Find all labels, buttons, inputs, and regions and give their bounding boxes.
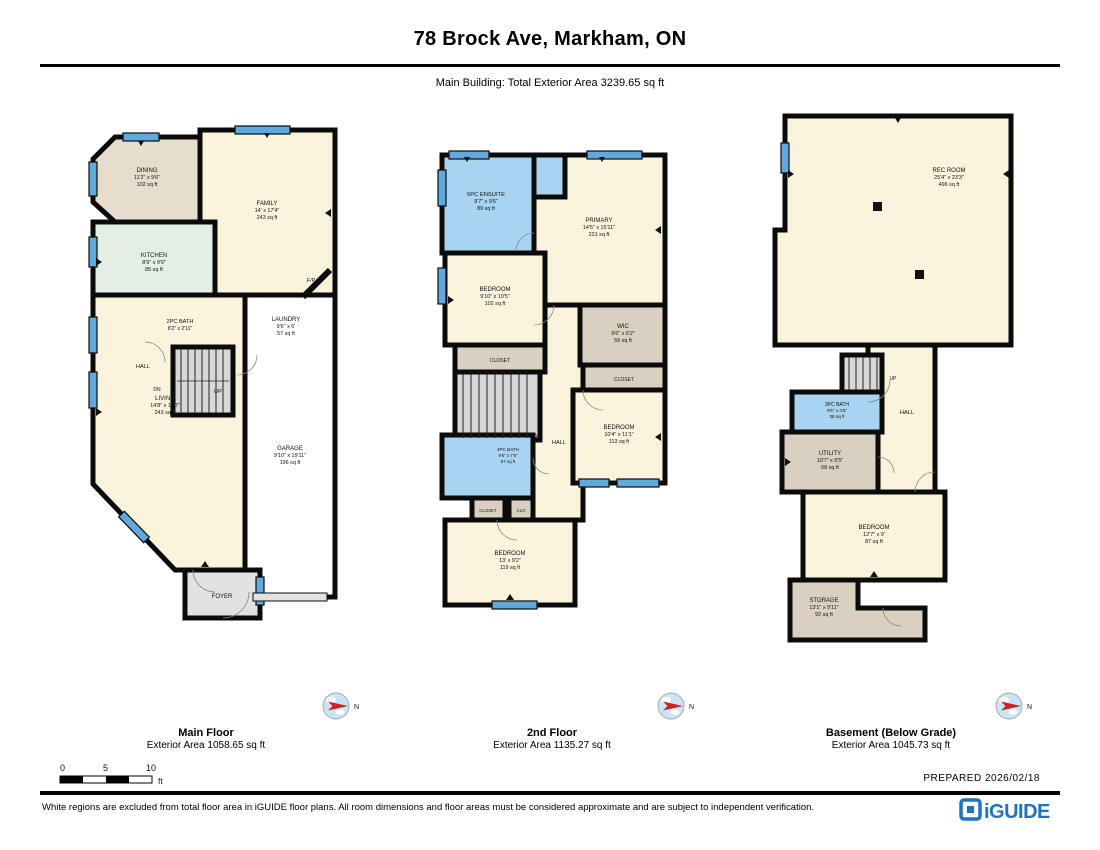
room-dims: 10'4" x 11'1": [604, 432, 633, 438]
room-label-family: FAMILY 14' x 17'4" 243 sq ft: [255, 201, 280, 221]
room-dims: 9'6" x 6'2": [611, 331, 635, 337]
room-dims: 9'10" x 10'5": [480, 294, 510, 300]
main-floor-caption: Main Floor Exterior Area 1058.65 sq ft: [96, 727, 316, 751]
room-area: 68 sq ft: [821, 465, 839, 471]
compass-icon: N: [656, 691, 700, 721]
room-name: PRIMARY: [585, 218, 612, 224]
room-dims: 14' x 17'4": [255, 208, 280, 214]
scale-bar-segment: [106, 776, 129, 783]
scale-bar: 0 5 10 ft: [56, 762, 186, 790]
room-area: 87 sq ft: [865, 539, 883, 545]
room-dims: 14'5" x 15'11": [583, 225, 615, 231]
window: [617, 479, 659, 487]
room-dims: 11'2" x 9'6": [134, 175, 160, 181]
room-dims: 8'9" x 9'9": [142, 260, 166, 266]
fireplace-label: F/P: [307, 278, 316, 284]
iguide-logo: iGUIDE: [958, 796, 1058, 824]
room-label-dining: DINING 11'2" x 9'6" 102 sq ft: [134, 168, 160, 188]
room-name: KITCHEN: [141, 253, 167, 259]
window: [89, 162, 97, 196]
compass-north-label: N: [1027, 704, 1032, 711]
room-label-closet-left: CLOSET: [490, 358, 510, 364]
floor-area: Exterior Area 1058.65 sq ft: [96, 740, 316, 751]
floor-area: Exterior Area 1135.27 sq ft: [442, 740, 662, 751]
room-name: BEDROOM: [858, 525, 889, 531]
window: [89, 317, 97, 353]
window: [587, 151, 642, 159]
floor-area: Exterior Area 1045.73 sq ft: [781, 740, 1001, 751]
room-label-foyer: FOYER: [212, 594, 233, 600]
iguide-logo-text: iGUIDE: [984, 801, 1050, 823]
room-area: 243 sq ft: [257, 215, 278, 221]
floor-name: 2nd Floor: [442, 727, 662, 739]
scale-bar-segment: [60, 776, 83, 783]
basement-plan: REC ROOM 25'4" x 23'3" 496 sq ft 3PC BAT…: [763, 112, 1015, 652]
prepared-date: PREPARED 2026/02/18: [860, 773, 1040, 784]
support-post: [915, 270, 924, 279]
room-name: BEDROOM: [603, 425, 634, 431]
building-area-subtitle: Main Building: Total Exterior Area 3239.…: [0, 77, 1100, 89]
dn-label: DN: [153, 387, 161, 393]
room-name: 5PC ENSUITE: [467, 192, 505, 198]
window: [89, 372, 97, 408]
window: [438, 268, 446, 304]
room-dims: 9'5" x 4'5": [827, 408, 847, 413]
hall-label: HALL: [136, 364, 150, 370]
window: [438, 170, 446, 206]
floor-name: Main Floor: [96, 727, 316, 739]
up-label: UP: [214, 389, 222, 395]
room-area: 196 sq ft: [280, 460, 301, 466]
floor-plan-page: 78 Brock Ave, Markham, ON Main Building:…: [0, 0, 1100, 850]
room-dims: 14'8" x 17'7": [150, 403, 180, 409]
room-area: 119 sq ft: [500, 565, 521, 571]
room-area: 496 sq ft: [939, 182, 960, 188]
compass-north-label: N: [354, 704, 359, 711]
room-area: 221 sq ft: [589, 232, 610, 238]
room-area: 102 sq ft: [137, 182, 158, 188]
basement-caption: Basement (Below Grade) Exterior Area 104…: [781, 727, 1001, 751]
main-floor-plan: DINING 11'2" x 9'6" 102 sq ft FAMILY 14'…: [85, 122, 347, 627]
room-name: BEDROOM: [494, 551, 525, 557]
ensuite-wc: [534, 155, 565, 197]
up-label: UP: [890, 376, 898, 382]
dn-label: DN: [533, 434, 541, 440]
room-area: 59 sq ft: [614, 338, 632, 344]
second-floor-caption: 2nd Floor Exterior Area 1135.27 sq ft: [442, 727, 662, 751]
footer-divider: [40, 791, 1060, 795]
basement-stairs: [842, 355, 882, 392]
room-name: UTILITY: [819, 451, 841, 457]
window: [235, 126, 290, 134]
room-area: 113 sq ft: [609, 439, 630, 445]
hall-label: HALL: [552, 440, 566, 446]
room-dims: 9'6" x 7'6": [498, 453, 518, 458]
iguide-logo-dot: [967, 806, 974, 813]
window: [123, 133, 159, 141]
room-dims: 9'10" x 19'11": [274, 453, 306, 459]
room-dims: 10'7" x 6'5": [817, 458, 844, 464]
scale-tick: 5: [103, 763, 108, 773]
room-label-closet-small: CLOSET: [479, 508, 497, 513]
support-post: [873, 202, 882, 211]
compass-icon: N: [321, 691, 365, 721]
room-area: 243 sq ft: [155, 410, 176, 416]
room-area: 85 sq ft: [145, 267, 163, 273]
room-label-closet-right: CLOSET: [614, 377, 634, 383]
floor-name: Basement (Below Grade): [781, 727, 1001, 739]
scale-unit: ft: [158, 776, 163, 786]
room-name: REC ROOM: [933, 168, 966, 174]
header-divider: [40, 64, 1060, 67]
room-name: LIVING: [155, 396, 175, 402]
page-title: 78 Brock Ave, Markham, ON: [0, 28, 1100, 51]
scale-tick: 10: [146, 763, 156, 773]
living-room: [93, 295, 245, 570]
room-name: GARAGE: [277, 446, 303, 452]
room-name: 2PC BATH: [167, 319, 194, 325]
room-dims: 13'1" x 9'11": [809, 605, 838, 611]
main-bath: [442, 435, 533, 498]
room-dims: 9'7" x 9'6": [474, 199, 498, 205]
room-dims: 25'4" x 23'3": [934, 175, 964, 181]
garage-door: [253, 593, 327, 601]
second-floor-plan: 5PC ENSUITE 9'7" x 9'6" 89 sq ft PRIMARY…: [437, 148, 672, 613]
compass-icon: N: [994, 691, 1038, 721]
room-name: FAMILY: [257, 201, 278, 207]
room-dims: 13' x 9'2": [499, 558, 521, 564]
window: [89, 237, 97, 267]
room-area: 89 sq ft: [477, 206, 495, 212]
window: [579, 479, 609, 487]
disclaimer-text: White regions are excluded from total fl…: [42, 802, 822, 813]
room-dims: 9'6" x 6': [277, 324, 296, 330]
window: [781, 143, 789, 173]
room-dims: 8'2" x 2'11": [168, 326, 192, 332]
room-name: 4PC BATH: [497, 447, 519, 452]
room-name: BEDROOM: [479, 287, 510, 293]
room-name: LAUNDRY: [272, 317, 301, 323]
room-name: DINING: [137, 168, 158, 174]
hall-label: HALL: [900, 410, 914, 416]
room-label-2pc-bath: 2PC BATH 8'2" x 2'11": [167, 319, 194, 332]
scale-tick: 0: [60, 763, 65, 773]
room-area: 57 sq ft: [277, 331, 295, 337]
room-name: WIC: [617, 324, 629, 330]
window: [492, 601, 537, 609]
room-name: STORAGE: [809, 598, 838, 604]
room-area: 92 sq ft: [815, 612, 833, 618]
room-dims: 12'7" x 9': [863, 532, 885, 538]
room-label-clo: CLO: [516, 508, 526, 513]
room-area: 102 sq ft: [485, 301, 506, 307]
room-area: 57 sq ft: [501, 459, 516, 464]
compass-north-label: N: [689, 704, 694, 711]
room-area: 38 sq ft: [829, 414, 845, 419]
